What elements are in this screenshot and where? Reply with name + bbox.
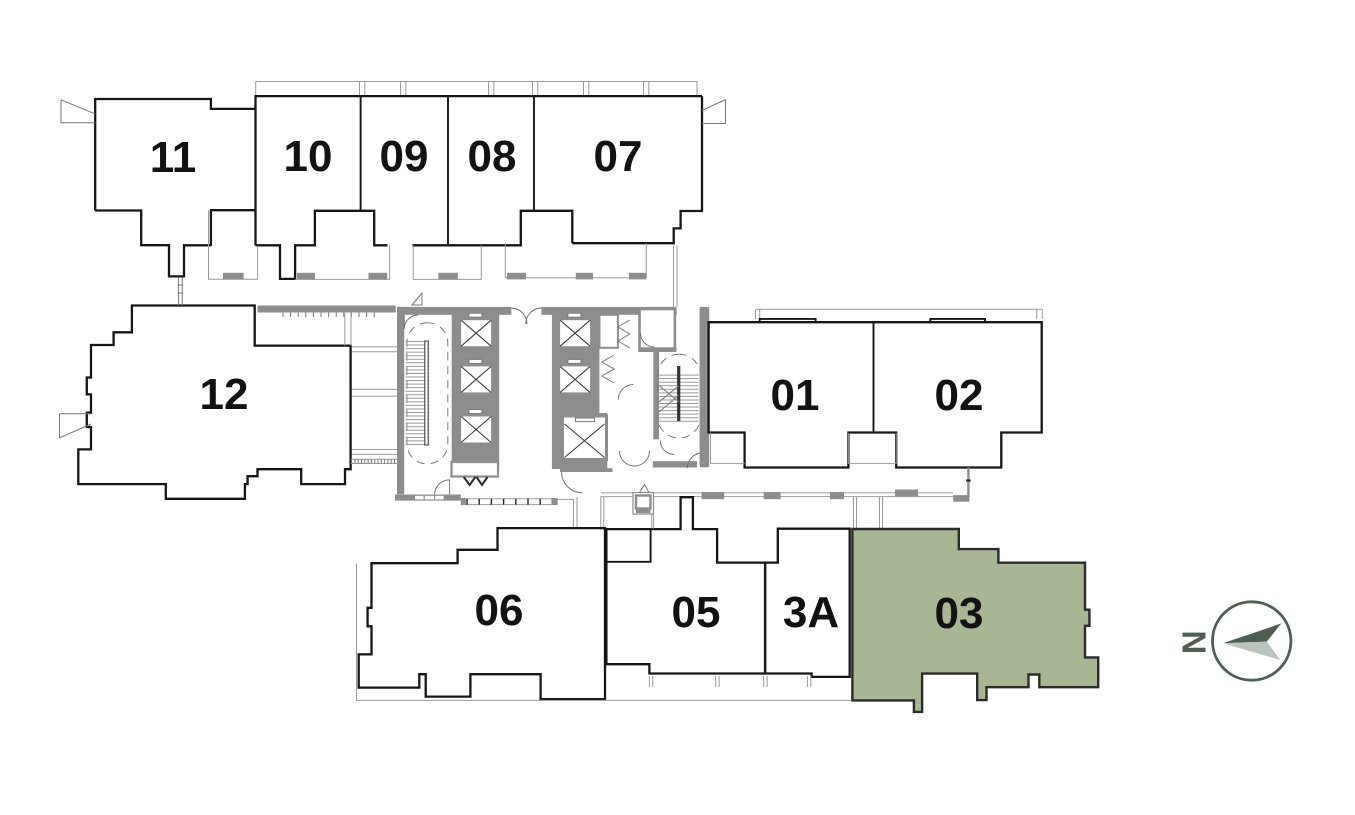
svg-text:06: 06 [475,586,524,635]
svg-text:01: 01 [771,371,820,420]
svg-text:10: 10 [284,132,333,181]
svg-text:03: 03 [935,589,984,638]
svg-text:09: 09 [380,132,429,181]
svg-text:05: 05 [672,588,721,637]
svg-text:11: 11 [150,133,197,182]
svg-text:02: 02 [935,371,984,420]
svg-text:3A: 3A [783,588,839,637]
svg-text:08: 08 [468,132,517,181]
svg-text:N: N [1175,630,1212,654]
svg-text:07: 07 [594,132,643,181]
svg-text:12: 12 [200,370,249,419]
